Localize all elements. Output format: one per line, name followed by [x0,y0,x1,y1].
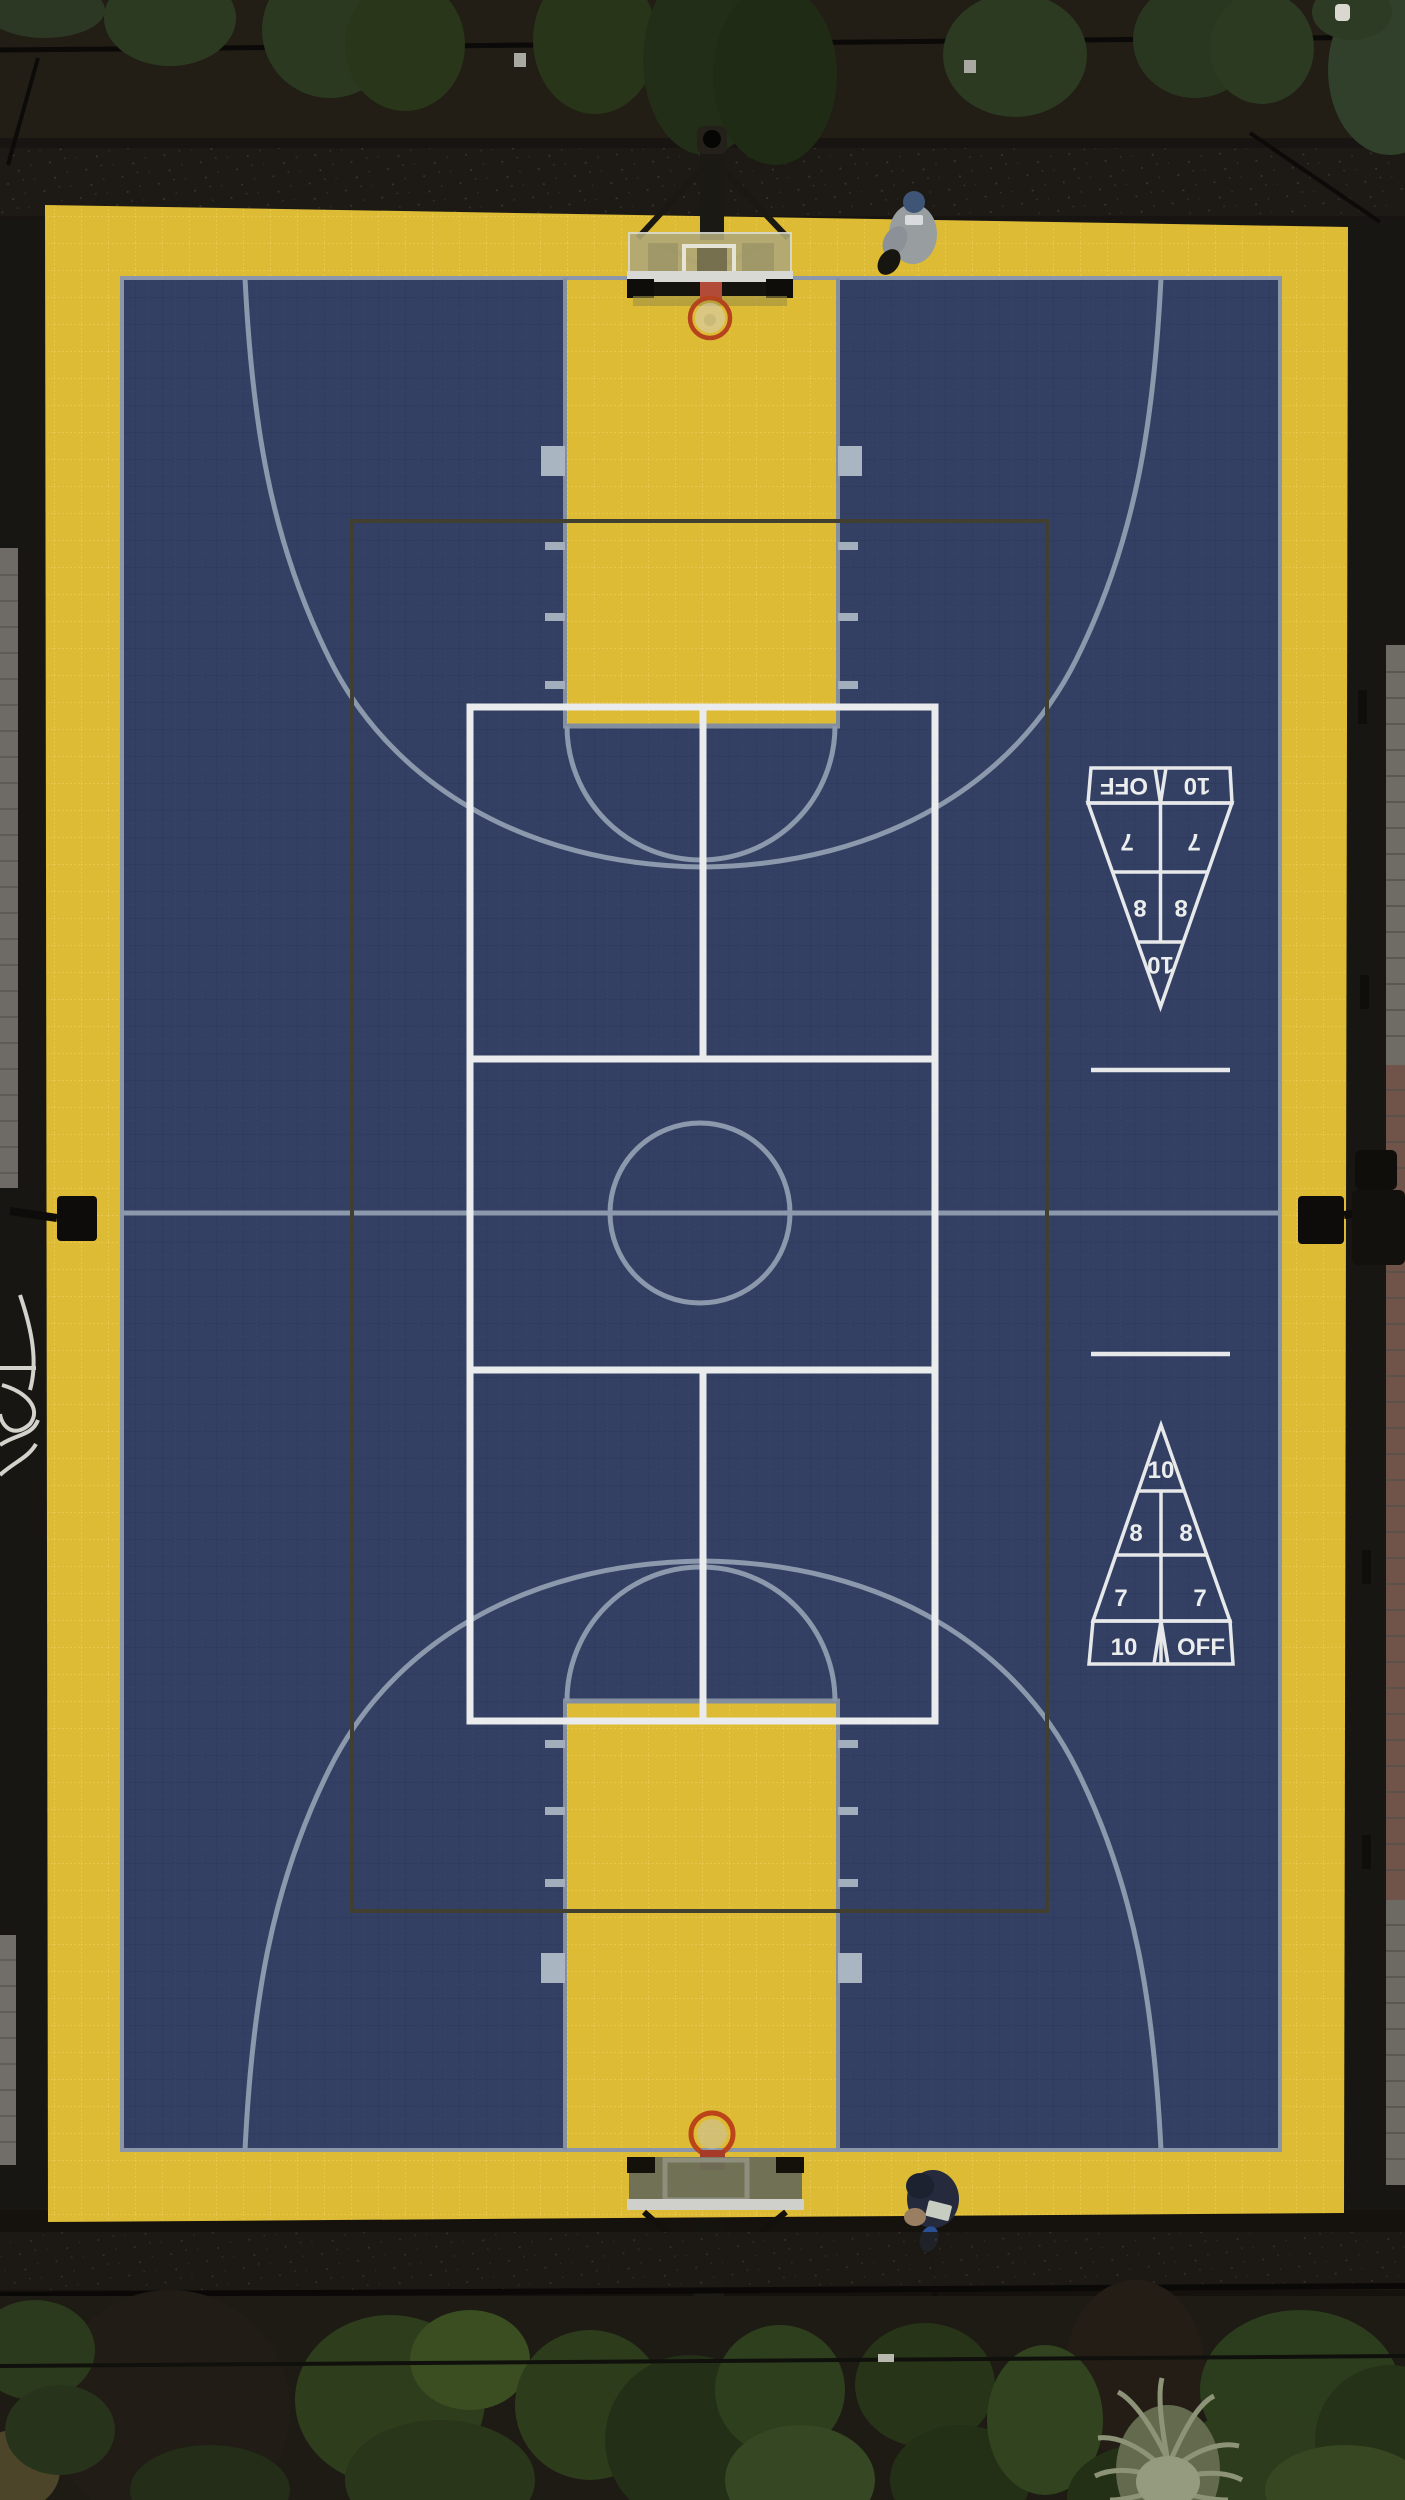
svg-text:10: 10 [1111,1634,1138,1661]
svg-text:7: 7 [1193,1585,1206,1612]
svg-text:10: 10 [1148,1457,1175,1484]
svg-text:7: 7 [1120,828,1133,855]
svg-text:10: 10 [1184,772,1211,799]
svg-text:7: 7 [1187,828,1200,855]
svg-text:8: 8 [1174,894,1187,921]
svg-text:10: 10 [1147,951,1174,978]
svg-text:8: 8 [1129,1520,1142,1547]
svg-text:OFF: OFF [1177,1634,1225,1661]
svg-text:8: 8 [1179,1520,1192,1547]
svg-text:OFF: OFF [1100,772,1148,799]
svg-text:8: 8 [1133,894,1146,921]
svg-text:7: 7 [1114,1585,1127,1612]
